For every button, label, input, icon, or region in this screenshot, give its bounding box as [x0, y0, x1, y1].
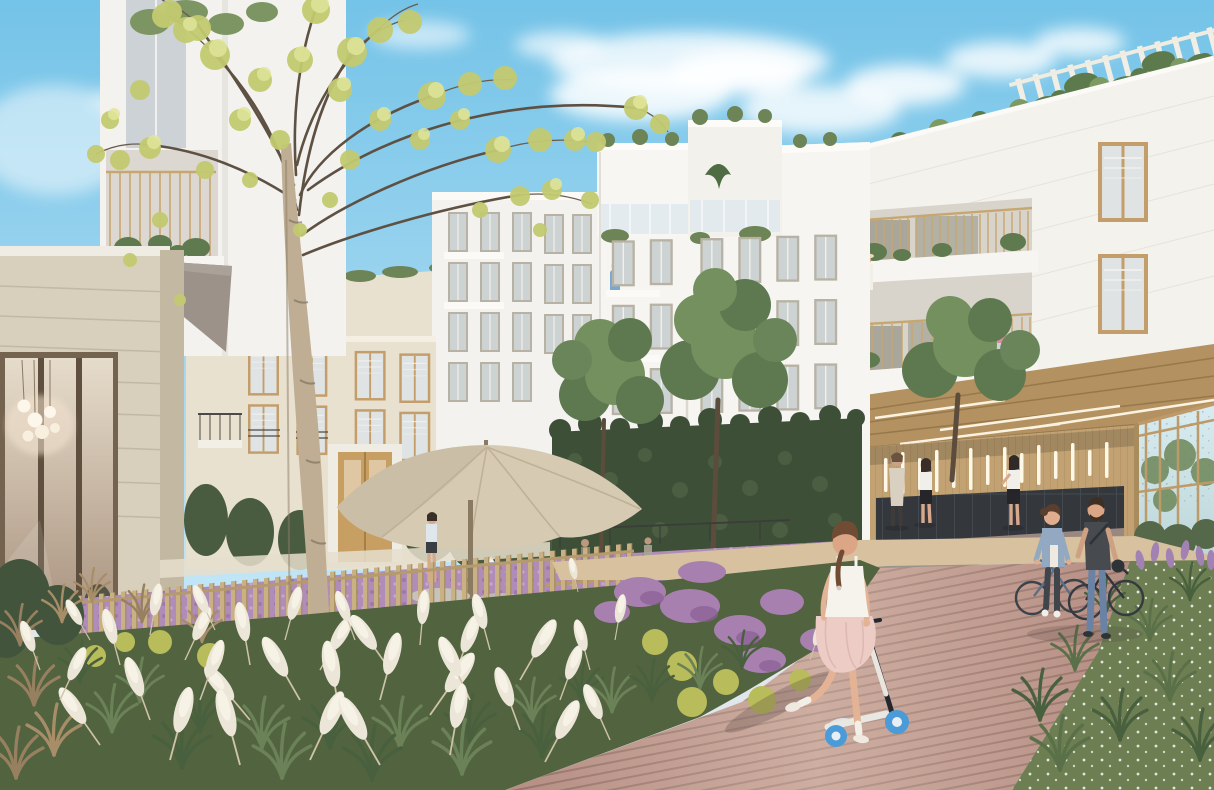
window-lower-right	[1098, 254, 1148, 334]
girl-top	[825, 566, 869, 617]
courtyard-rendering: Architectural rendering of a new residen…	[0, 0, 1214, 790]
helmet	[1112, 560, 1125, 573]
small-balcony	[198, 440, 242, 448]
window-upper-right	[1098, 142, 1148, 222]
scene-image: Architectural rendering of a new residen…	[0, 0, 1214, 790]
